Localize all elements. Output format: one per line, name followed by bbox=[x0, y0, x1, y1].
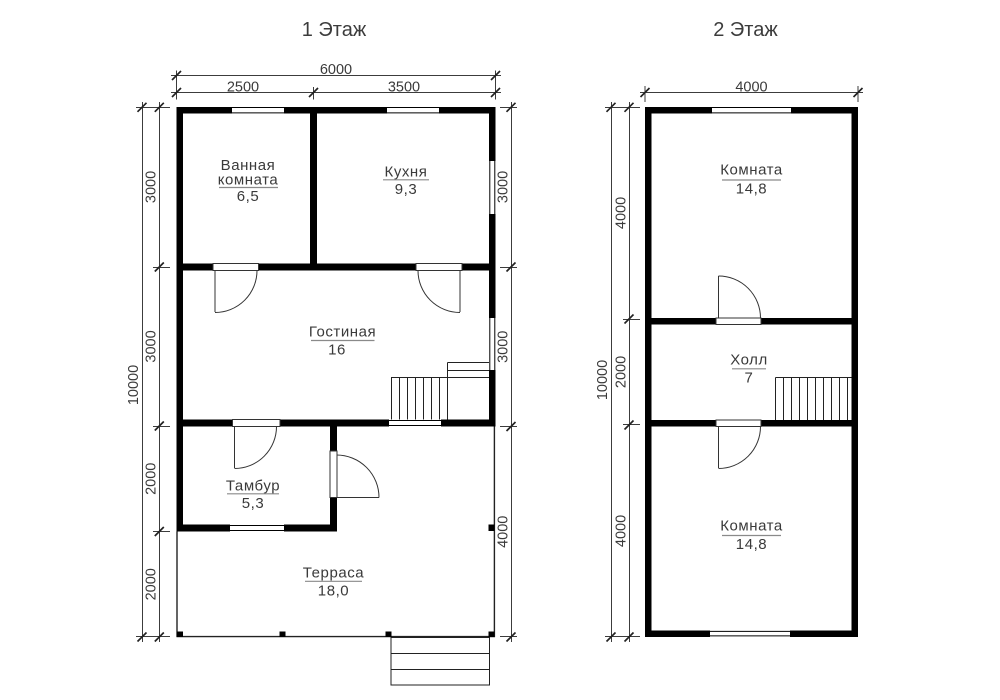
svg-text:9,3: 9,3 bbox=[395, 181, 418, 198]
svg-text:2000: 2000 bbox=[144, 568, 160, 600]
svg-text:3000: 3000 bbox=[144, 330, 160, 362]
svg-text:14,8: 14,8 bbox=[736, 181, 767, 198]
svg-text:4000: 4000 bbox=[735, 80, 767, 96]
svg-text:10000: 10000 bbox=[595, 360, 611, 400]
svg-text:4000: 4000 bbox=[496, 516, 512, 548]
svg-text:4000: 4000 bbox=[614, 197, 630, 229]
svg-text:10000: 10000 bbox=[126, 365, 142, 405]
svg-text:Кухня: Кухня bbox=[385, 164, 428, 181]
svg-text:16: 16 bbox=[328, 342, 346, 359]
svg-text:3000: 3000 bbox=[496, 171, 512, 203]
svg-text:Тамбур: Тамбур bbox=[226, 478, 280, 495]
svg-text:1 Этаж: 1 Этаж bbox=[302, 19, 367, 41]
svg-text:2 Этаж: 2 Этаж bbox=[713, 19, 778, 41]
svg-text:5,3: 5,3 bbox=[242, 495, 265, 512]
svg-text:комната: комната bbox=[218, 172, 279, 189]
svg-text:Гостиная: Гостиная bbox=[309, 324, 376, 341]
svg-text:6,5: 6,5 bbox=[237, 188, 260, 205]
svg-text:7: 7 bbox=[745, 370, 754, 387]
svg-text:Терраса: Терраса bbox=[303, 565, 364, 582]
svg-text:3000: 3000 bbox=[144, 171, 160, 203]
svg-text:18,0: 18,0 bbox=[318, 583, 349, 600]
svg-text:3500: 3500 bbox=[388, 80, 420, 96]
svg-text:Комната: Комната bbox=[720, 518, 783, 535]
svg-text:Комната: Комната bbox=[720, 162, 783, 179]
svg-text:2500: 2500 bbox=[227, 80, 259, 96]
svg-text:3000: 3000 bbox=[496, 331, 512, 363]
svg-text:14,8: 14,8 bbox=[736, 536, 767, 553]
svg-text:4000: 4000 bbox=[614, 515, 630, 547]
svg-text:2000: 2000 bbox=[144, 463, 160, 495]
svg-text:Холл: Холл bbox=[730, 352, 768, 369]
svg-text:2000: 2000 bbox=[614, 356, 630, 388]
svg-text:6000: 6000 bbox=[320, 62, 352, 78]
